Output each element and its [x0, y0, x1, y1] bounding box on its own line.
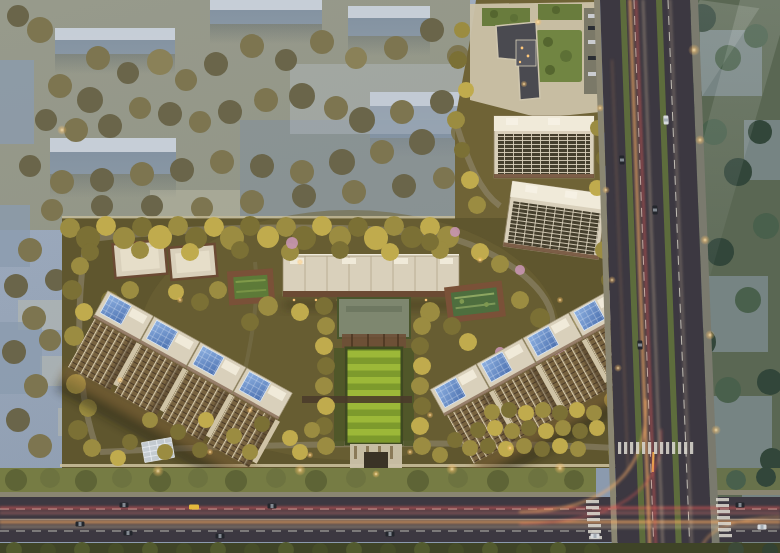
- south-boundary-wall: [60, 464, 635, 467]
- taxi: [189, 505, 199, 510]
- courtyard-garden: [536, 30, 582, 82]
- bottom-tree-band: [0, 542, 780, 553]
- aerial-rendering: [0, 0, 780, 553]
- lattice-roof-slab-north: [494, 116, 594, 178]
- rendering-canvas: [0, 0, 780, 553]
- sunken-courtyard-east-pool: [444, 280, 506, 323]
